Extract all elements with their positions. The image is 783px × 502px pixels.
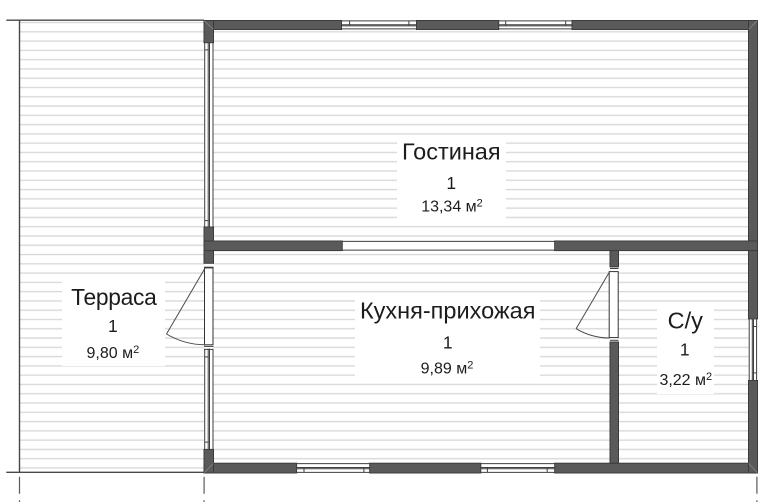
svg-text:13,34 м2: 13,34 м2 <box>421 198 483 216</box>
svg-text:С/у: С/у <box>668 307 704 333</box>
svg-text:9,80 м2: 9,80 м2 <box>87 344 140 362</box>
svg-text:1: 1 <box>680 340 690 360</box>
svg-text:Терраса: Терраса <box>71 284 157 310</box>
svg-text:9,89 м2: 9,89 м2 <box>421 360 474 378</box>
svg-text:1: 1 <box>446 173 456 193</box>
svg-text:1: 1 <box>108 316 118 336</box>
svg-text:Кухня-прихожая: Кухня-прихожая <box>360 298 535 324</box>
svg-text:1: 1 <box>443 333 453 353</box>
svg-text:Гостиная: Гостиная <box>402 139 501 165</box>
svg-text:3,22 м2: 3,22 м2 <box>659 371 712 389</box>
